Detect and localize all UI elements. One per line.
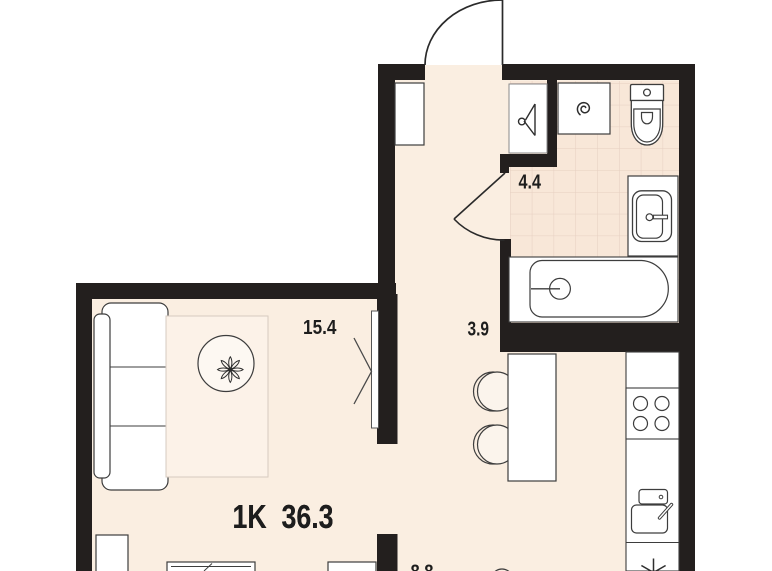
svg-text:15.4: 15.4 [303,317,337,339]
svg-text:3.9: 3.9 [468,319,490,341]
svg-text:4.4: 4.4 [519,172,542,194]
svg-text:1K 36.3: 1K 36.3 [233,499,334,536]
svg-text:8.8: 8.8 [411,562,434,571]
